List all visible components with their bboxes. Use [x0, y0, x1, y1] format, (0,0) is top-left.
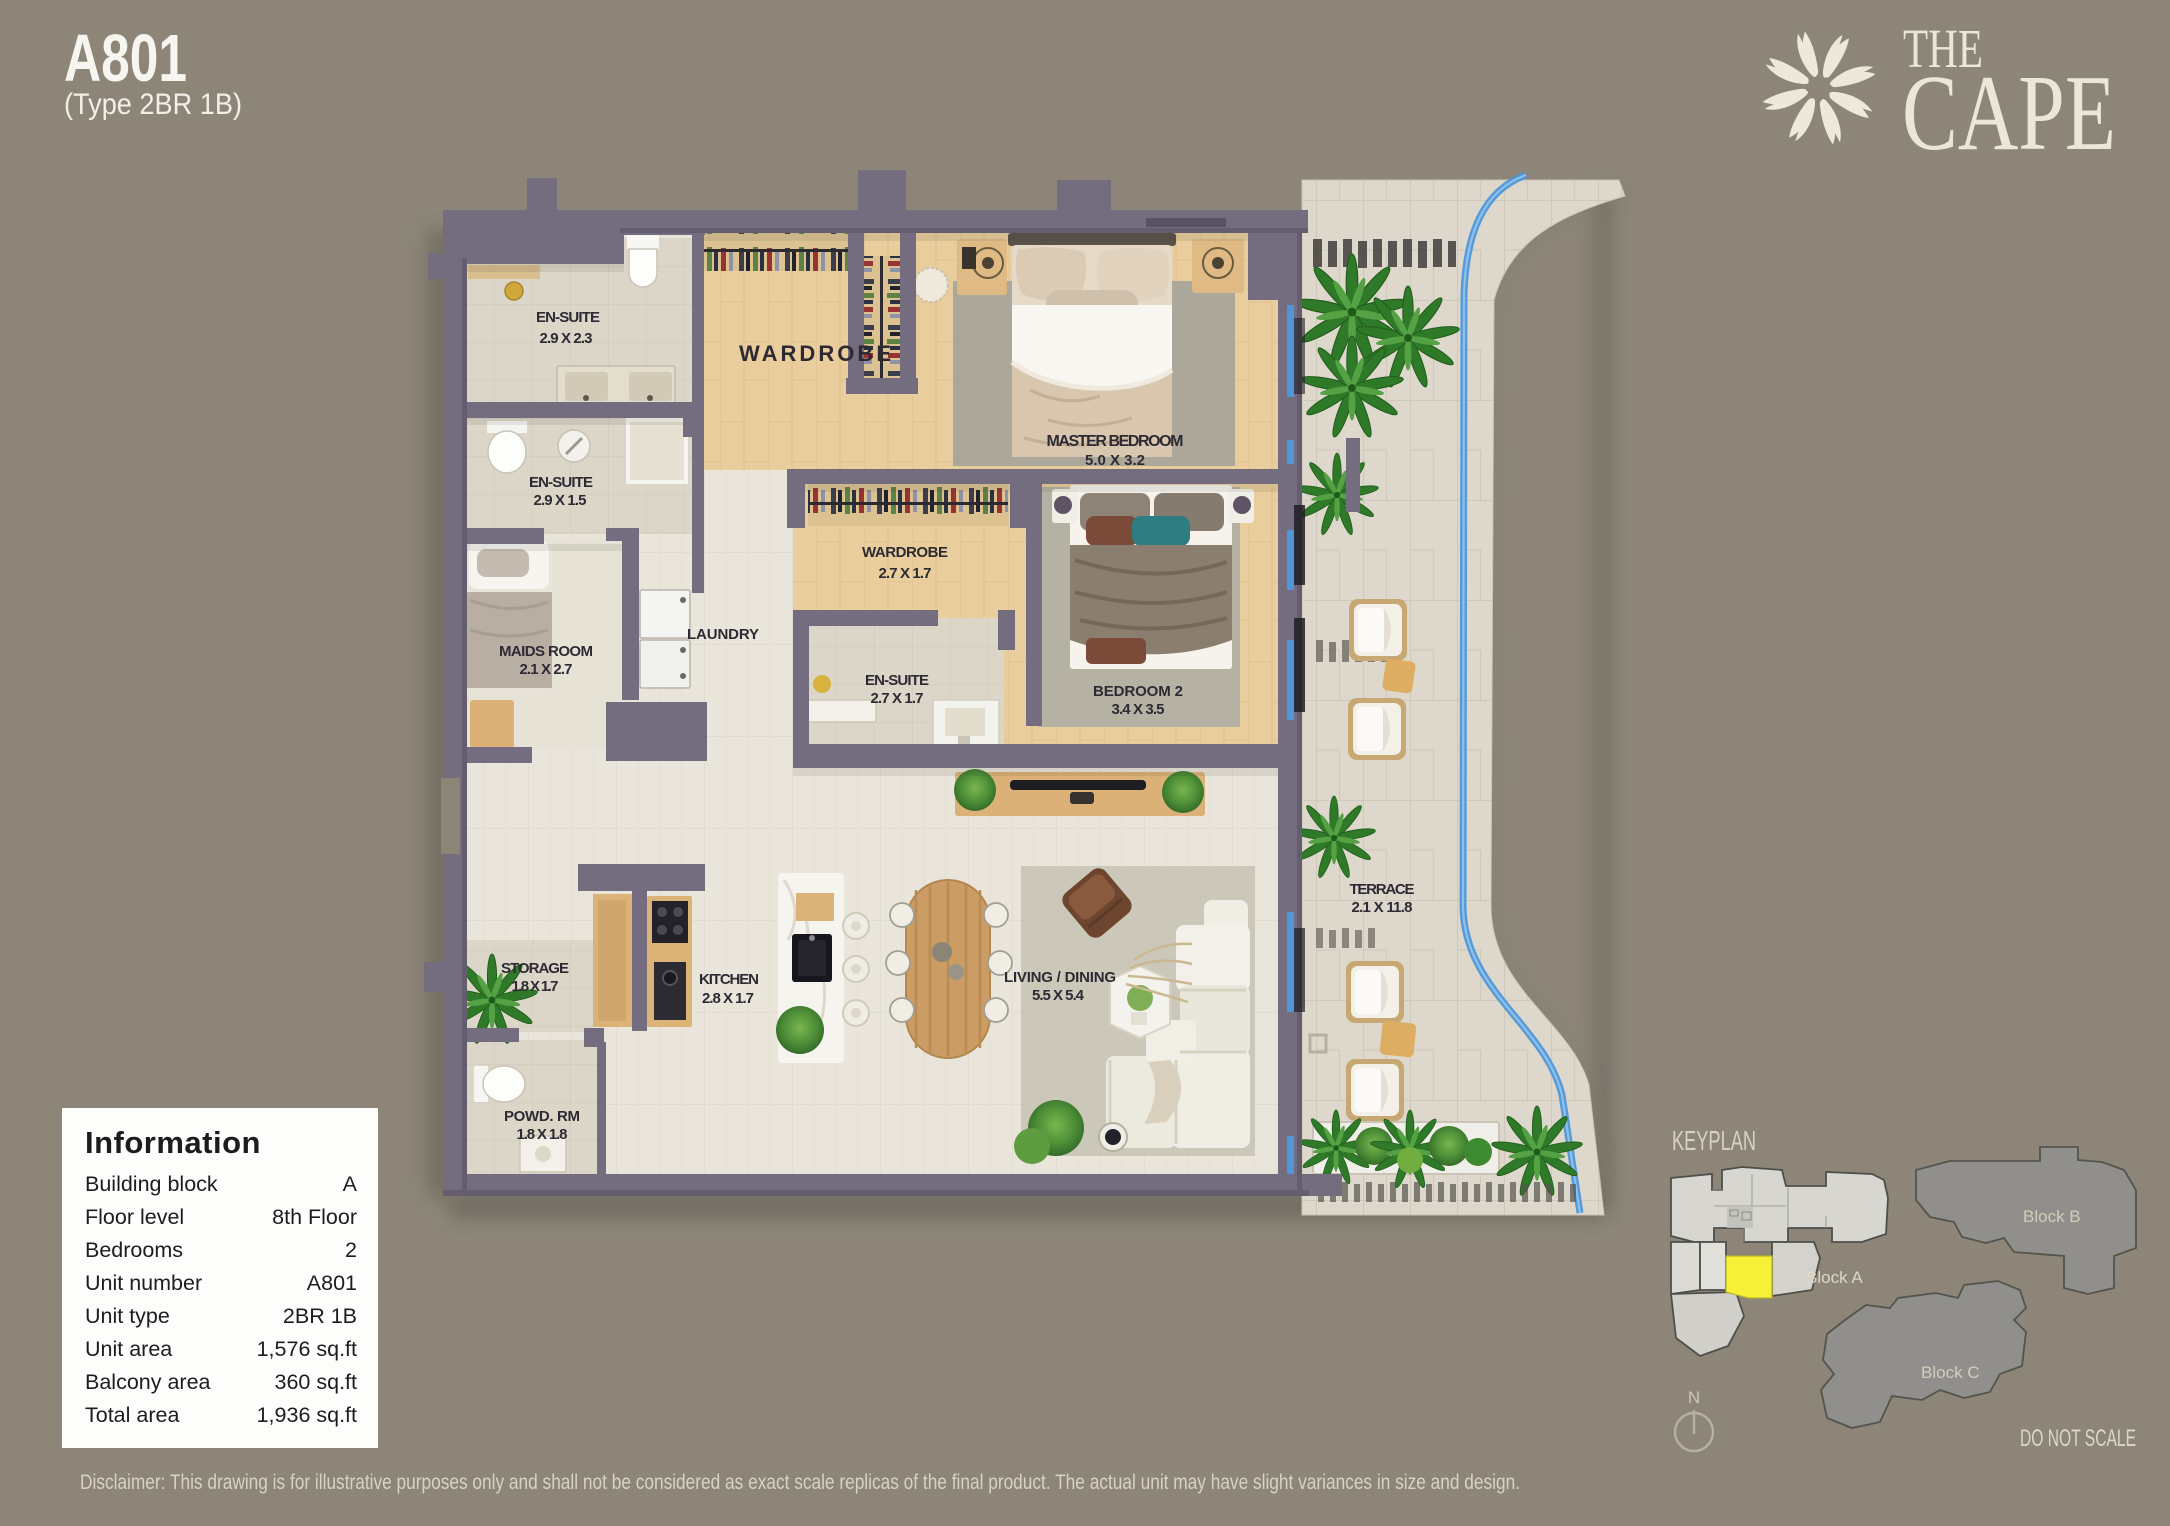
svg-text:KITCHEN: KITCHEN [699, 971, 759, 988]
svg-text:1,936 sq.ft: 1,936 sq.ft [257, 1403, 357, 1427]
svg-text:Disclaimer: This drawing is fo: Disclaimer: This drawing is for illustra… [80, 1471, 1520, 1494]
svg-text:2.1 X 2.7: 2.1 X 2.7 [520, 661, 573, 678]
svg-text:MASTER BEDROOM: MASTER BEDROOM [1047, 433, 1184, 450]
svg-text:EN-SUITE: EN-SUITE [536, 309, 600, 326]
svg-text:EN-SUITE: EN-SUITE [529, 474, 593, 491]
svg-text:Block B: Block B [2023, 1207, 2081, 1226]
svg-text:1,576 sq.ft: 1,576 sq.ft [257, 1337, 357, 1361]
svg-text:DO NOT SCALE: DO NOT SCALE [2020, 1425, 2136, 1452]
svg-text:A: A [343, 1172, 358, 1196]
svg-text:WARDROBE: WARDROBE [862, 544, 948, 561]
svg-text:Information: Information [85, 1125, 261, 1160]
svg-text:1.8 X 1.8: 1.8 X 1.8 [517, 1126, 568, 1143]
svg-text:2.7 X 1.7: 2.7 X 1.7 [871, 690, 924, 707]
svg-text:Floor level: Floor level [85, 1205, 184, 1229]
svg-text:N: N [1688, 1388, 1700, 1407]
svg-text:WARDROBE: WARDROBE [739, 341, 891, 366]
svg-text:LAUNDRY: LAUNDRY [687, 626, 759, 643]
svg-text:Bedrooms: Bedrooms [85, 1238, 183, 1262]
svg-text:LIVING / DINING: LIVING / DINING [1004, 969, 1116, 986]
svg-text:Total area: Total area [85, 1403, 179, 1427]
svg-text:1.8 X 1.7: 1.8 X 1.7 [512, 978, 559, 995]
svg-text:Block A: Block A [1806, 1268, 1863, 1287]
svg-text:Unit area: Unit area [85, 1337, 172, 1361]
svg-text:2.8 X 1.7: 2.8 X 1.7 [702, 990, 754, 1007]
svg-text:5.5 X 5.4: 5.5 X 5.4 [1032, 987, 1085, 1004]
svg-text:STORAGE: STORAGE [501, 960, 569, 977]
svg-text:(Type 2BR 1B): (Type 2BR 1B) [64, 88, 242, 121]
svg-text:2.7 X 1.7: 2.7 X 1.7 [879, 565, 932, 582]
svg-text:5.0 X 3.2: 5.0 X 3.2 [1085, 452, 1145, 469]
svg-text:2.1 X 11.8: 2.1 X 11.8 [1352, 899, 1413, 916]
svg-text:BEDROOM 2: BEDROOM 2 [1093, 683, 1183, 700]
svg-text:Building block: Building block [85, 1172, 218, 1196]
svg-text:Block C: Block C [1921, 1363, 1980, 1382]
svg-text:Balcony area: Balcony area [85, 1370, 211, 1394]
svg-text:2.9 X 1.5: 2.9 X 1.5 [534, 492, 587, 509]
svg-text:2: 2 [345, 1238, 357, 1262]
svg-text:CAPE: CAPE [1902, 54, 2116, 173]
svg-text:Unit number: Unit number [85, 1271, 202, 1295]
svg-text:MAIDS ROOM: MAIDS ROOM [499, 643, 593, 660]
svg-text:8th Floor: 8th Floor [272, 1205, 357, 1229]
svg-text:EN-SUITE: EN-SUITE [865, 672, 929, 689]
svg-text:A801: A801 [307, 1271, 357, 1295]
svg-text:360 sq.ft: 360 sq.ft [275, 1370, 357, 1394]
svg-text:Unit type: Unit type [85, 1304, 170, 1328]
svg-text:2BR 1B: 2BR 1B [283, 1304, 357, 1328]
svg-text:TERRACE: TERRACE [1350, 881, 1415, 898]
svg-text:3.4 X 3.5: 3.4 X 3.5 [1112, 701, 1165, 718]
svg-text:A801: A801 [64, 21, 187, 96]
svg-text:POWD. RM: POWD. RM [504, 1108, 580, 1125]
svg-text:KEYPLAN: KEYPLAN [1672, 1125, 1756, 1156]
svg-text:2.9 X 2.3: 2.9 X 2.3 [540, 330, 593, 347]
